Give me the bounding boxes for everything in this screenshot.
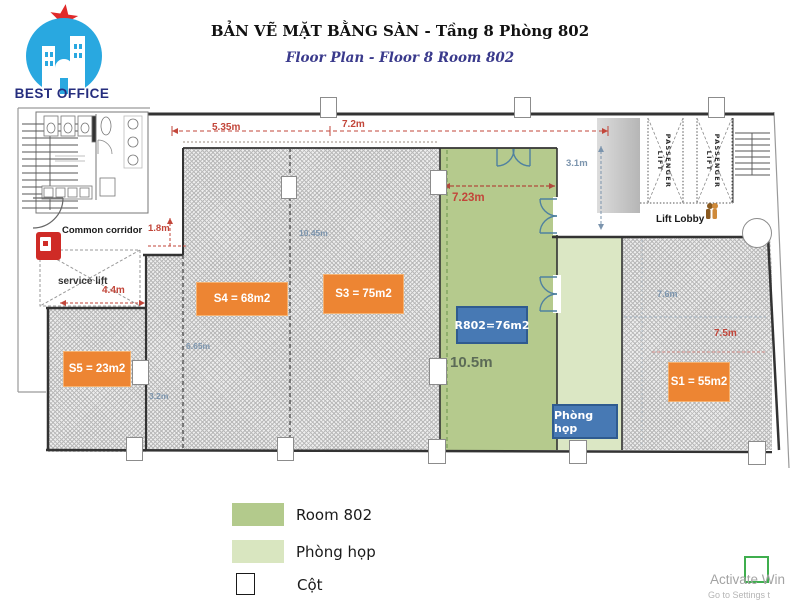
column <box>748 441 766 465</box>
dim-6-65m: 6.65m <box>186 341 210 351</box>
column <box>428 439 446 464</box>
column <box>126 437 143 461</box>
dim-10-45m: 10.45m <box>299 228 328 238</box>
dim-7-6m: 7.6m <box>657 289 678 299</box>
label-passenger-lift-2: PASSENGER LIFT <box>709 126 721 196</box>
door-arc <box>513 149 530 166</box>
dim-7-23m: 7.23m <box>452 192 485 204</box>
watermark-line2: Go to Settings t <box>708 590 770 600</box>
legend-label-meeting: Phòng họp <box>296 543 376 561</box>
dim-3-2m: 3.2m <box>149 391 168 401</box>
watermark-line1: Activate Win <box>710 572 785 587</box>
dim-7-5m: 7.5m <box>714 328 737 339</box>
label-service-lift: service lift <box>58 276 107 287</box>
column <box>429 358 447 385</box>
column <box>514 97 531 118</box>
dim-1-8m: 1.8m <box>148 223 170 234</box>
brand-name: BEST OFFICE <box>6 86 118 101</box>
door-arc <box>497 149 514 166</box>
dim-5-35m: 5.35m <box>212 122 240 133</box>
label-common-corridor: Common corridor <box>62 225 142 236</box>
column <box>132 360 149 385</box>
room-label-s5: S5 = 23m2 <box>63 351 131 387</box>
page-title: BẢN VẼ MẶT BẰNG SÀN - Tầng 8 Phòng 802 <box>0 22 800 40</box>
column <box>430 170 447 195</box>
dim-7-2m: 7.2m <box>342 119 365 130</box>
legend-label-column: Cột <box>297 576 323 594</box>
column <box>281 176 297 199</box>
dim-4-4m: 4.4m <box>102 285 125 296</box>
dim-3-1m: 3.1m <box>566 158 588 169</box>
column <box>277 437 294 461</box>
legend-label-room802: Room 802 <box>296 506 372 524</box>
dim-10-5m: 10.5m <box>450 354 493 371</box>
label-passenger-lift-1: PASSENGER LIFT <box>660 126 672 196</box>
floor-plan-page: BEST OFFICE BẢN VẼ MẶT BẰNG SÀN - Tầng 8… <box>0 0 800 600</box>
room-label-s3: S3 = 75m2 <box>323 274 404 314</box>
legend-swatch-column <box>236 573 255 595</box>
stairs-right-icon <box>735 133 770 175</box>
best-office-logo <box>12 2 116 94</box>
room-label-r802: R802=76m2 <box>456 306 528 344</box>
room-label-s1: S1 = 55m2 <box>668 362 730 402</box>
fire-extinguisher-icon <box>36 232 61 260</box>
room-label-s4: S4 = 68m2 <box>196 282 288 316</box>
page-subtitle: Floor Plan - Floor 8 Room 802 <box>0 50 800 66</box>
column <box>569 440 587 464</box>
legend-swatch-meeting <box>232 540 284 563</box>
round-column <box>742 218 772 248</box>
column <box>708 97 725 118</box>
person-icon <box>706 203 718 219</box>
legend-swatch-room802 <box>232 503 284 526</box>
column <box>320 97 337 118</box>
room-label-meeting: Phòng họp <box>552 404 618 439</box>
label-lift-lobby: Lift Lobby <box>656 214 704 225</box>
